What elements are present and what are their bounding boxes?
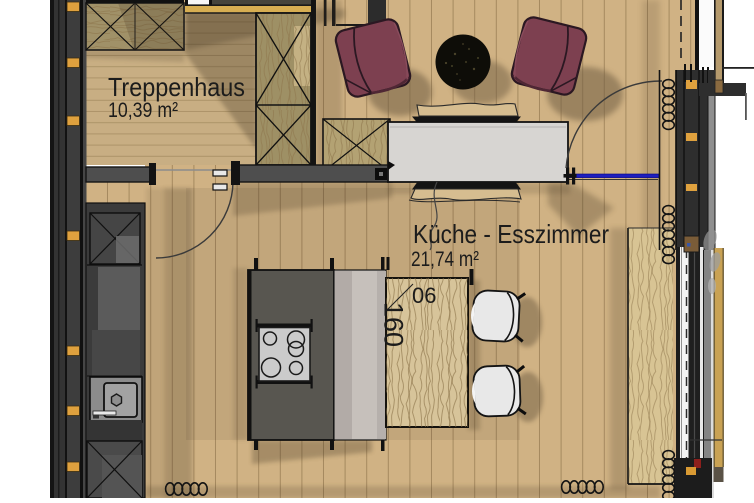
- svg-text:160: 160: [379, 302, 409, 347]
- svg-text:Treppenhaus: Treppenhaus: [108, 72, 245, 102]
- svg-text:06: 06: [412, 283, 436, 308]
- svg-text:Küche - Esszimmer: Küche - Esszimmer: [413, 219, 609, 249]
- svg-text:21,74 m²: 21,74 m²: [411, 248, 479, 271]
- svg-text:10,39 m²: 10,39 m²: [108, 99, 178, 122]
